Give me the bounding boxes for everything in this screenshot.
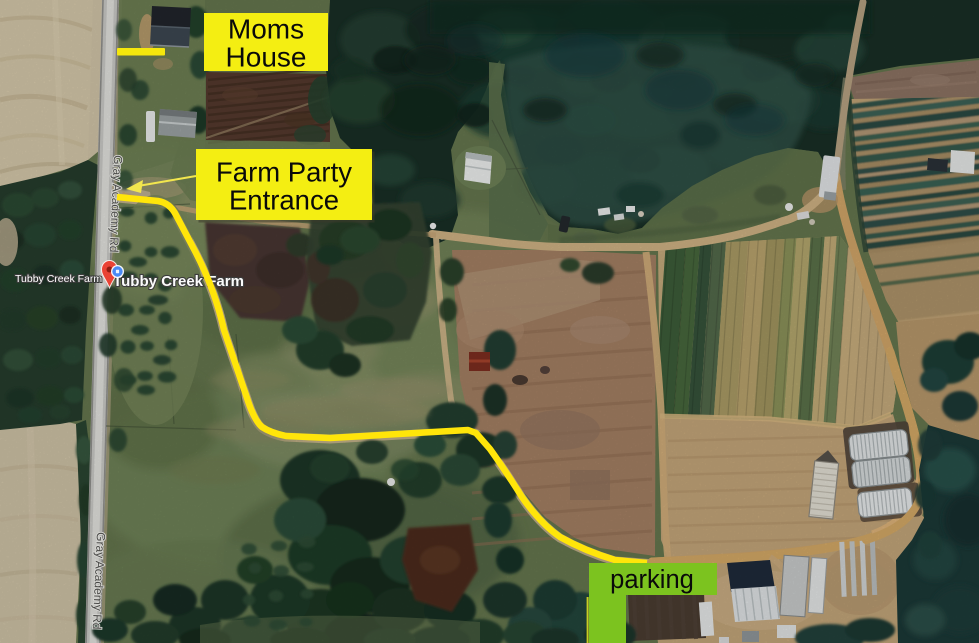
svg-text:House: House [226, 42, 307, 73]
svg-text:parking: parking [610, 566, 694, 594]
svg-text:Farm Party: Farm Party [216, 157, 352, 188]
svg-text:Moms: Moms [228, 14, 304, 45]
svg-text:Tubby Creek Farm: Tubby Creek Farm [15, 273, 102, 285]
svg-text:Tubby Creek Farm: Tubby Creek Farm [113, 273, 244, 290]
svg-text:Entrance: Entrance [229, 185, 339, 216]
